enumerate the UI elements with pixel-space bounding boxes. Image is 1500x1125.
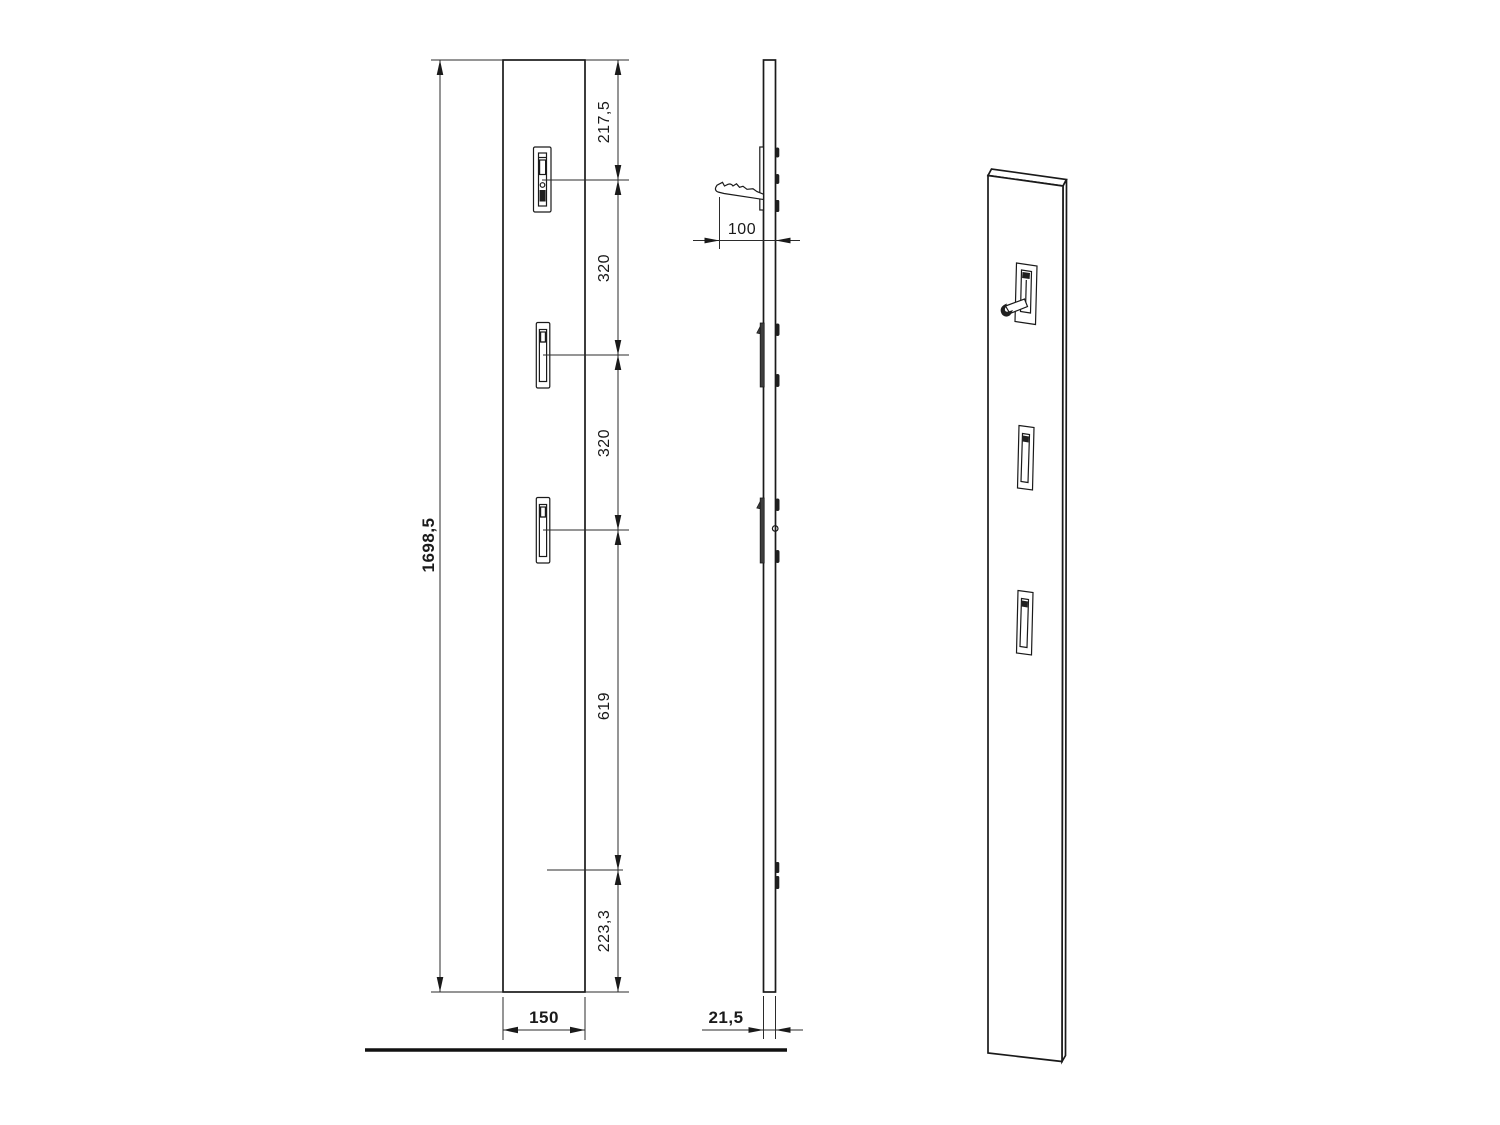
arrowhead-right [705, 238, 720, 244]
hook-tip-edge [757, 502, 760, 509]
width-dimension: 150 [503, 997, 585, 1040]
arrowhead-left [776, 238, 791, 244]
hook-depth-dimension: 100 [693, 197, 800, 249]
hook-latch [1022, 272, 1030, 279]
arrowhead [615, 977, 622, 992]
arrowhead-left [503, 1027, 518, 1033]
dim-label-segment-1: 217,5 [596, 101, 613, 144]
back-fastener [776, 499, 780, 512]
arrowhead [615, 530, 622, 545]
arrowhead [615, 60, 622, 75]
hook-arm-edge [540, 190, 546, 202]
hook-latch [1022, 601, 1028, 608]
arrowhead-right [749, 1027, 764, 1033]
back-fastener [776, 200, 780, 212]
hook-plate-edge [760, 498, 764, 563]
technical-drawing-page: 1698,5 217,5 320 320 619 223,3 [0, 0, 1500, 1125]
arrowhead [615, 180, 622, 195]
arrowhead [615, 515, 622, 530]
dim-label-hook-depth: 100 [728, 221, 756, 238]
back-fastener [776, 374, 780, 387]
dim-label-total-height: 1698,5 [419, 518, 438, 573]
arrowhead [615, 870, 622, 885]
height-dimension: 1698,5 [419, 60, 503, 992]
hook-plate-edge [760, 147, 764, 210]
front-view: 1698,5 217,5 320 320 619 223,3 [419, 60, 629, 1040]
back-fastener [776, 148, 780, 158]
hook-plate [1017, 591, 1034, 656]
arrowhead-up [437, 60, 444, 75]
arrowhead [615, 355, 622, 370]
back-fastener [776, 324, 780, 337]
hook-plate-edge [760, 323, 764, 387]
dim-label-thickness: 21,5 [708, 1008, 743, 1027]
side-view: 100 21,5 [693, 60, 803, 1039]
arrowhead-down [437, 977, 444, 992]
arrowhead-right [570, 1027, 585, 1033]
drawing-canvas: 1698,5 217,5 320 320 619 223,3 [0, 0, 1500, 1125]
perspective-hook-3 [1017, 591, 1034, 656]
back-fastener [776, 550, 780, 563]
hook-arm [715, 182, 763, 199]
dim-label-width: 150 [529, 1008, 559, 1027]
arrowhead [615, 165, 622, 180]
bracket-part [776, 876, 780, 889]
back-fastener [776, 174, 780, 184]
arrowhead-left [776, 1027, 791, 1033]
perspective-view [988, 169, 1067, 1062]
dim-label-segment-2: 320 [596, 254, 613, 282]
perspective-hook-2 [1018, 426, 1035, 491]
hook-plate [1018, 426, 1035, 491]
hook-tip-edge [757, 327, 760, 334]
dim-label-segment-5: 223,3 [596, 910, 613, 953]
hook-latch [1023, 436, 1029, 443]
thickness-dimension: 21,5 [702, 996, 803, 1039]
arrowhead [615, 340, 622, 355]
bracket-part [776, 862, 780, 873]
arrowhead [615, 855, 622, 870]
dim-label-segment-4: 619 [596, 692, 613, 720]
dim-label-segment-3: 320 [596, 429, 613, 457]
